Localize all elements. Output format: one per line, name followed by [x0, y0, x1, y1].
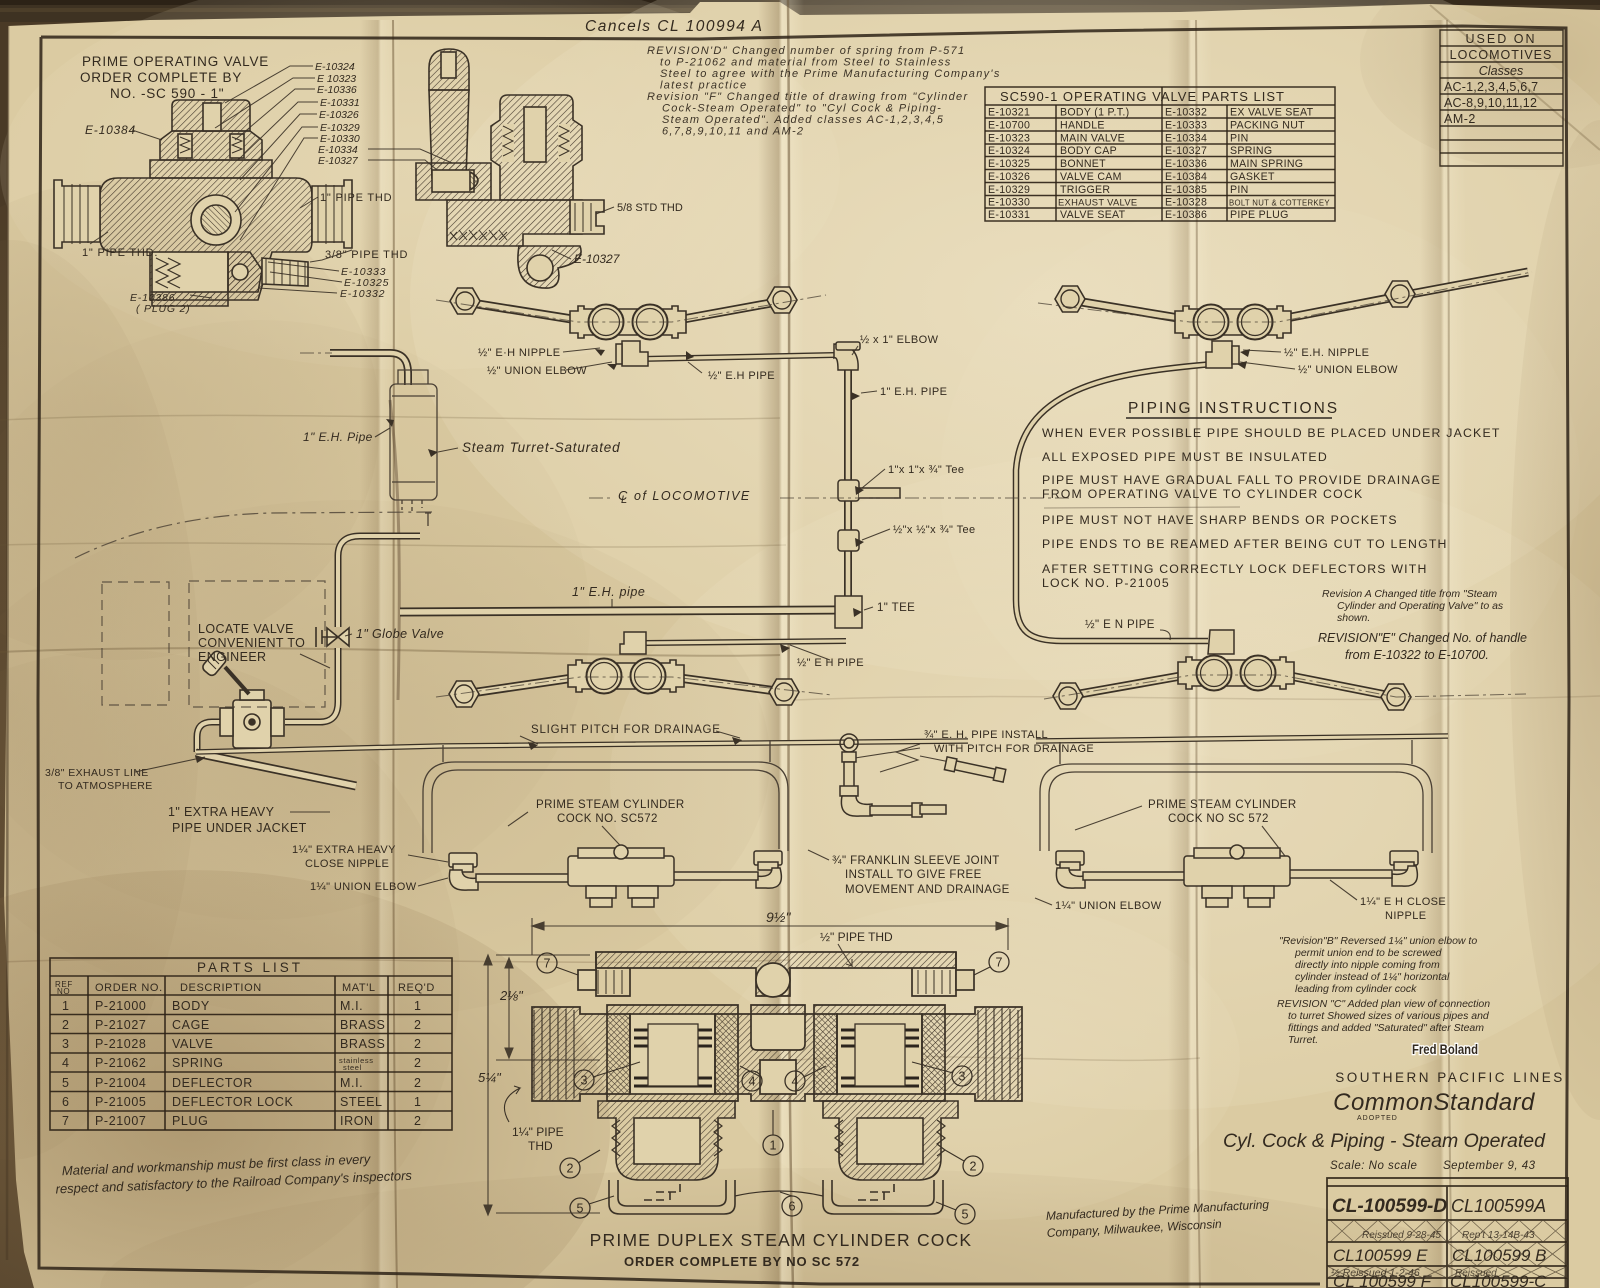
svg-text:Classes: Classes — [1479, 64, 1523, 78]
svg-text:E-10327: E-10327 — [318, 155, 359, 167]
svg-text:7: 7 — [62, 1114, 70, 1128]
svg-text:NO. -SC 590 - 1": NO. -SC 590 - 1" — [110, 86, 224, 101]
svg-text:BONNET: BONNET — [1060, 158, 1106, 170]
svg-text:CL100599A: CL100599A — [1451, 1196, 1546, 1216]
svg-text:PRIME STEAM CYLINDER: PRIME STEAM CYLINDER — [536, 799, 685, 811]
svg-text:CL100599 B: CL100599 B — [1452, 1246, 1547, 1265]
svg-text:DEFLECTOR LOCK: DEFLECTOR LOCK — [172, 1095, 293, 1109]
svg-text:5¼": 5¼" — [478, 1070, 502, 1085]
svg-text:½" E·H NIPPLE: ½" E·H NIPPLE — [478, 347, 560, 359]
svg-text:PIPE PLUG: PIPE PLUG — [1230, 209, 1289, 221]
svg-text:September 9, 43: September 9, 43 — [1443, 1160, 1536, 1172]
svg-text:6,7,8,9,10,11 and AM-2: 6,7,8,9,10,11 and AM-2 — [662, 126, 804, 138]
svg-text:E-10329: E-10329 — [988, 184, 1030, 196]
svg-text:Fred Boland: Fred Boland — [1412, 1042, 1478, 1057]
svg-text:P-21000: P-21000 — [95, 999, 146, 1013]
svg-text:shown.: shown. — [1337, 612, 1370, 624]
svg-text:THD: THD — [528, 1139, 553, 1153]
svg-text:Cyl. Cock & Piping - Steam Op: Cyl. Cock & Piping - Steam Operated — [1223, 1130, 1546, 1152]
svg-text:1" E.H. pipe: 1" E.H. pipe — [572, 585, 645, 599]
svg-text:1¼" E H CLOSE: 1¼" E H CLOSE — [1360, 896, 1446, 908]
svg-text:STEEL: STEEL — [340, 1095, 383, 1109]
svg-text:¾" FRANKLIN SLEEVE JOINT: ¾" FRANKLIN SLEEVE JOINT — [832, 855, 1000, 867]
svg-text:E-10336: E-10336 — [317, 84, 357, 96]
svg-text:Cancels CL 100994 A: Cancels CL 100994 A — [585, 18, 763, 35]
svg-text:M.I.: M.I. — [340, 999, 363, 1013]
svg-text:DESCRIPTION: DESCRIPTION — [180, 982, 262, 994]
svg-text:LOCOMOTIVES: LOCOMOTIVES — [1450, 48, 1553, 62]
svg-text:2: 2 — [567, 1162, 574, 1176]
svg-text:CONVENIENT TO: CONVENIENT TO — [198, 636, 305, 650]
svg-text:CL 100599 F: CL 100599 F — [1333, 1272, 1433, 1288]
svg-text:E-10332: E-10332 — [340, 288, 385, 300]
svg-text:M.I.: M.I. — [340, 1076, 363, 1090]
svg-text:1¼" EXTRA HEAVY: 1¼" EXTRA HEAVY — [292, 844, 396, 856]
svg-text:SPRING: SPRING — [172, 1056, 224, 1070]
svg-text:L: L — [621, 494, 628, 506]
svg-text:( PLUG 2): ( PLUG 2) — [136, 303, 190, 315]
svg-text:E-10700: E-10700 — [988, 120, 1030, 132]
svg-text:AM-2: AM-2 — [1444, 112, 1476, 126]
svg-text:E-10324: E-10324 — [315, 61, 355, 73]
svg-text:USED ON: USED ON — [1466, 32, 1537, 46]
svg-text:ENGINEER: ENGINEER — [198, 650, 267, 664]
svg-text:1" EXTRA HEAVY: 1" EXTRA HEAVY — [168, 805, 275, 819]
svg-text:PRIME STEAM CYLINDER: PRIME STEAM CYLINDER — [1148, 799, 1297, 811]
svg-text:Rep't 13-14B-43: Rep't 13-14B-43 — [1462, 1230, 1535, 1241]
svg-text:to P-21062 and material from S: to P-21062 and material from Steel to St… — [660, 57, 952, 69]
svg-text:CL100599 E: CL100599 E — [1333, 1246, 1428, 1265]
svg-text:P-21028: P-21028 — [95, 1037, 146, 1051]
svg-text:¾" E. H. PIPE INSTALL: ¾" E. H. PIPE INSTALL — [924, 729, 1048, 741]
svg-text:MAIN SPRING: MAIN SPRING — [1230, 158, 1303, 170]
svg-text:COCK NO SC 572: COCK NO SC 572 — [1168, 813, 1269, 825]
svg-text:MAIN VALVE: MAIN VALVE — [1060, 133, 1125, 145]
svg-text:VALVE CAM: VALVE CAM — [1060, 171, 1122, 183]
svg-text:ALL EXPOSED PIPE MUST BE INSUL: ALL EXPOSED PIPE MUST BE INSULATED — [1042, 450, 1328, 464]
svg-text:3: 3 — [581, 1074, 588, 1088]
svg-text:NO: NO — [57, 987, 70, 996]
svg-text:1" PIPE THD.: 1" PIPE THD. — [82, 247, 158, 259]
svg-text:PIPE MUST HAVE GRADUAL FALL TO: PIPE MUST HAVE GRADUAL FALL TO PROVIDE D… — [1042, 473, 1441, 487]
svg-text:Revision A Changed title fro: Revision A Changed title from "Steam — [1322, 588, 1497, 600]
svg-text:PACKING NUT: PACKING NUT — [1230, 120, 1305, 132]
svg-text:2: 2 — [62, 1018, 70, 1032]
svg-text:"Revision"B" Reversed 1¼" unio: "Revision"B" Reversed 1¼" union elbow to — [1279, 935, 1477, 947]
svg-text:REVISION "C" Added plan view o: REVISION "C" Added plan view of connecti… — [1277, 998, 1490, 1010]
svg-text:2: 2 — [414, 1114, 422, 1128]
svg-text:BODY: BODY — [172, 999, 210, 1013]
svg-text:VALVE SEAT: VALVE SEAT — [1060, 209, 1126, 221]
svg-text:PIPING INSTRUCTIONS: PIPING INSTRUCTIONS — [1128, 400, 1339, 417]
svg-text:1: 1 — [62, 999, 70, 1013]
svg-text:½" E.H. NIPPLE: ½" E.H. NIPPLE — [1284, 347, 1369, 359]
svg-text:1¼" UNION ELBOW: 1¼" UNION ELBOW — [310, 881, 417, 893]
svg-text:E-10325: E-10325 — [988, 158, 1030, 170]
svg-text:ORDER NO.: ORDER NO. — [95, 982, 163, 994]
svg-text:E-10326: E-10326 — [319, 109, 359, 121]
svg-text:PIN: PIN — [1230, 133, 1249, 145]
svg-text:SC590-1 OPERATING VALVE PART: SC590-1 OPERATING VALVE PARTS LIST — [1000, 89, 1285, 104]
svg-text:5: 5 — [962, 1208, 969, 1222]
svg-text:E-10384: E-10384 — [85, 123, 136, 137]
svg-text:7: 7 — [544, 957, 551, 971]
svg-text:directly into nipple coming fr: directly into nipple coming from — [1295, 959, 1440, 971]
svg-text:E-10331: E-10331 — [320, 97, 360, 109]
svg-text:2: 2 — [414, 1056, 422, 1070]
svg-text:REVISION'D" Changed number of: REVISION'D" Changed number of spring fro… — [647, 45, 965, 57]
svg-text:1: 1 — [770, 1139, 777, 1153]
svg-text:IRON: IRON — [340, 1114, 374, 1128]
svg-text:5: 5 — [62, 1076, 70, 1090]
svg-text:1¼" PIPE: 1¼" PIPE — [512, 1125, 564, 1139]
svg-text:P-21062: P-21062 — [95, 1056, 146, 1070]
svg-text:2: 2 — [970, 1160, 977, 1174]
svg-text:EXHAUST VALVE: EXHAUST VALVE — [1058, 197, 1137, 208]
svg-text:1" Globe Valve: 1" Globe Valve — [356, 627, 444, 641]
svg-text:7: 7 — [996, 956, 1003, 970]
svg-text:TRIGGER: TRIGGER — [1060, 184, 1110, 196]
svg-text:P-21007: P-21007 — [95, 1114, 146, 1128]
svg-text:P-21005: P-21005 — [95, 1095, 146, 1109]
svg-text:SPRING: SPRING — [1230, 145, 1272, 157]
svg-text:9½": 9½" — [766, 909, 791, 925]
svg-text:Steam Turret-Saturated: Steam Turret-Saturated — [462, 440, 620, 455]
svg-text:1" TEE: 1" TEE — [877, 602, 915, 614]
svg-text:E-10331: E-10331 — [988, 209, 1030, 221]
svg-text:Scale: No scale: Scale: No scale — [1330, 1160, 1417, 1172]
svg-text:E-10324: E-10324 — [988, 145, 1030, 157]
svg-text:from E-10322 to E-10700.: from E-10322 to E-10700. — [1345, 648, 1489, 662]
svg-text:MOVEMENT AND DRAINAGE: MOVEMENT AND DRAINAGE — [845, 884, 1010, 896]
svg-text:4: 4 — [62, 1056, 70, 1070]
svg-text:P-21027: P-21027 — [95, 1018, 146, 1032]
svg-text:4: 4 — [792, 1075, 799, 1089]
svg-text:AC-1,2,3,4,5,6,7: AC-1,2,3,4,5,6,7 — [1444, 80, 1538, 94]
svg-text:CommonStandard: CommonStandard — [1333, 1089, 1535, 1116]
svg-text:E-10327: E-10327 — [574, 252, 621, 266]
svg-text:6: 6 — [62, 1095, 70, 1109]
svg-text:½" UNION ELBOW: ½" UNION ELBOW — [1298, 364, 1398, 376]
svg-text:leading from cylinder cock: leading from cylinder cock — [1295, 983, 1417, 995]
svg-text:to turret Showed sizes of var: to turret Showed sizes of various pipes … — [1288, 1010, 1490, 1022]
svg-text:3/8" EXHAUST LINE: 3/8" EXHAUST LINE — [45, 767, 149, 779]
svg-text:AC-8,9,10,11,12: AC-8,9,10,11,12 — [1444, 96, 1537, 110]
svg-text:PARTS LIST: PARTS LIST — [197, 960, 303, 975]
svg-text:1"x 1"x ¾" Tee: 1"x 1"x ¾" Tee — [888, 464, 964, 476]
svg-text:SLIGHT PITCH FOR DRAINAGE: SLIGHT PITCH FOR DRAINAGE — [531, 724, 721, 736]
svg-text:Reissued 9-28-45: Reissued 9-28-45 — [1362, 1230, 1441, 1241]
svg-text:3: 3 — [62, 1037, 70, 1051]
svg-text:½" PIPE THD: ½" PIPE THD — [820, 930, 893, 944]
svg-text:½" UNION ELBOW: ½" UNION ELBOW — [487, 365, 587, 377]
svg-text:ADOPTED: ADOPTED — [1357, 1115, 1398, 1122]
svg-text:CLOSE NIPPLE: CLOSE NIPPLE — [305, 858, 389, 870]
svg-text:PIPE ENDS TO BE REAMED AFTER B: PIPE ENDS TO BE REAMED AFTER BEING CUT T… — [1042, 537, 1448, 551]
svg-text:PLUG: PLUG — [172, 1114, 208, 1128]
svg-text:E-10384: E-10384 — [1165, 171, 1207, 183]
svg-text:PIPE UNDER JACKET: PIPE UNDER JACKET — [172, 821, 307, 835]
svg-text:ORDER COMPLETE BY NO SC 572: ORDER COMPLETE BY NO SC 572 — [624, 1254, 860, 1269]
svg-text:½" E N PIPE: ½" E N PIPE — [1085, 619, 1155, 631]
svg-text:INSTALL TO GIVE FREE: INSTALL TO GIVE FREE — [845, 869, 982, 881]
svg-text:E-10332: E-10332 — [1165, 107, 1207, 119]
svg-text:steel: steel — [343, 1063, 362, 1072]
svg-text:Revision "F" Changed title of: Revision "F" Changed title of drawing fr… — [647, 91, 968, 103]
svg-text:E-10336: E-10336 — [1165, 158, 1207, 170]
svg-text:COCK NO. SC572: COCK NO. SC572 — [557, 813, 658, 825]
svg-text:HANDLE: HANDLE — [1060, 120, 1105, 132]
svg-text:LOCATE VALVE: LOCATE VALVE — [198, 622, 294, 636]
svg-text:PRIME DUPLEX STEAM CYLINDER: PRIME DUPLEX STEAM CYLINDER COCK — [590, 1230, 973, 1250]
svg-text:ORDER COMPLETE BY: ORDER COMPLETE BY — [80, 70, 242, 85]
svg-text:MAT'L: MAT'L — [342, 982, 376, 994]
svg-text:2: 2 — [414, 1018, 422, 1032]
svg-text:BODY CAP: BODY CAP — [1060, 145, 1117, 157]
svg-text:½" E H PIPE: ½" E H PIPE — [797, 657, 864, 669]
svg-text:of LOCOMOTIVE: of LOCOMOTIVE — [634, 489, 751, 503]
svg-text:WHEN EVER POSSIBLE PIPE SHOULD: WHEN EVER POSSIBLE PIPE SHOULD BE PLACED… — [1042, 426, 1501, 440]
svg-text:E-10385: E-10385 — [1165, 184, 1207, 196]
svg-text:½" E.H PIPE: ½" E.H PIPE — [708, 370, 775, 382]
svg-text:6: 6 — [789, 1200, 796, 1214]
svg-text:REVISION"E" Changed No. of han: REVISION"E" Changed No. of handle — [1318, 631, 1527, 645]
svg-text:E-10328: E-10328 — [1165, 197, 1207, 209]
svg-text:1: 1 — [414, 1095, 422, 1109]
svg-text:CAGE: CAGE — [172, 1018, 210, 1032]
svg-text:½ x 1" ELBOW: ½ x 1" ELBOW — [860, 334, 939, 346]
svg-text:Cock-Steam Operated" to "Cyl: Cock-Steam Operated" to "Cyl Cock & Pipi… — [662, 103, 942, 115]
svg-text:E-10327: E-10327 — [1165, 145, 1207, 157]
svg-text:2⅛": 2⅛" — [499, 988, 524, 1003]
svg-text:BRASS: BRASS — [340, 1037, 385, 1051]
svg-text:cylinder instead of 1¼" horizo: cylinder instead of 1¼" horizontal — [1295, 971, 1450, 983]
svg-text:BOLT NUT & COTTERKEY: BOLT NUT & COTTERKEY — [1229, 199, 1330, 208]
svg-text:5: 5 — [577, 1202, 584, 1216]
svg-text:REQ'D: REQ'D — [398, 982, 435, 994]
svg-text:1" PIPE THD: 1" PIPE THD — [320, 192, 392, 204]
svg-text:E-10386: E-10386 — [1165, 209, 1207, 221]
svg-text:TO ATMOSPHERE: TO ATMOSPHERE — [58, 780, 153, 792]
svg-text:PIPE MUST NOT HAVE SHARP BENDS: PIPE MUST NOT HAVE SHARP BENDS OR POCKET… — [1042, 513, 1398, 527]
svg-text:DEFLECTOR: DEFLECTOR — [172, 1076, 253, 1090]
svg-text:PRIME OPERATING VALVE: PRIME OPERATING VALVE — [82, 54, 269, 69]
svg-text:E-10330: E-10330 — [988, 197, 1030, 209]
svg-text:5/8 STD THD: 5/8 STD THD — [617, 202, 683, 214]
svg-text:GASKET: GASKET — [1230, 171, 1275, 183]
svg-text:1" E.H. Pipe: 1" E.H. Pipe — [303, 430, 373, 444]
svg-text:½"x ½"x ¾" Tee: ½"x ½"x ¾" Tee — [893, 524, 976, 536]
svg-text:LOCK NO. P-21005: LOCK NO. P-21005 — [1042, 576, 1170, 590]
svg-text:SOUTHERN PACIFIC LINES: SOUTHERN PACIFIC LINES — [1335, 1070, 1565, 1085]
svg-text:1" E.H. PIPE: 1" E.H. PIPE — [880, 386, 947, 398]
svg-text:CL100599-C: CL100599-C — [1450, 1272, 1547, 1288]
svg-text:PIN: PIN — [1230, 184, 1249, 196]
svg-text:EX VALVE SEAT: EX VALVE SEAT — [1230, 107, 1314, 119]
svg-text:permit union end to be screwed: permit union end to be screwed — [1294, 947, 1443, 959]
svg-text:E-10334: E-10334 — [1165, 133, 1207, 145]
svg-text:BODY (1 P.T.): BODY (1 P.T.) — [1060, 107, 1129, 119]
svg-text:E-10323: E-10323 — [988, 133, 1030, 145]
svg-text:Steam Operated". Added classe: Steam Operated". Added classes AC-1,2,3,… — [662, 114, 944, 126]
svg-text:E-10333: E-10333 — [1165, 120, 1207, 132]
svg-text:FROM OPERATING VALVE TO CYLIND: FROM OPERATING VALVE TO CYLINDER COCK — [1042, 487, 1363, 501]
svg-text:2: 2 — [414, 1037, 422, 1051]
svg-text:E-10321: E-10321 — [988, 107, 1030, 119]
svg-text:1¼" UNION ELBOW: 1¼" UNION ELBOW — [1055, 900, 1162, 912]
svg-text:2: 2 — [414, 1076, 422, 1090]
svg-text:P-21004: P-21004 — [95, 1076, 146, 1090]
svg-text:4: 4 — [749, 1075, 756, 1089]
svg-text:NIPPLE: NIPPLE — [1385, 910, 1427, 922]
svg-text:E-10326: E-10326 — [988, 171, 1030, 183]
svg-text:WITH PITCH FOR DRAINAGE: WITH PITCH FOR DRAINAGE — [934, 743, 1094, 755]
svg-text:VALVE: VALVE — [172, 1037, 213, 1051]
svg-text:Cylinder and Operating Valve": Cylinder and Operating Valve" to as — [1337, 600, 1504, 612]
svg-text:Steel to agree with the Prime: Steel to agree with the Prime Manufactur… — [660, 68, 1001, 80]
svg-text:latest practice: latest practice — [660, 80, 747, 92]
svg-text:3: 3 — [959, 1070, 966, 1084]
svg-text:fittings and added "Saturated": fittings and added "Saturated" after Ste… — [1288, 1022, 1484, 1034]
svg-text:1: 1 — [414, 999, 422, 1013]
svg-text:CL-100599-D: CL-100599-D — [1332, 1196, 1447, 1217]
svg-text:BRASS: BRASS — [340, 1018, 385, 1032]
svg-text:AFTER SETTING CORRECTLY LOCK D: AFTER SETTING CORRECTLY LOCK DEFLECTORS … — [1042, 562, 1428, 576]
svg-text:Turret.: Turret. — [1288, 1034, 1318, 1046]
